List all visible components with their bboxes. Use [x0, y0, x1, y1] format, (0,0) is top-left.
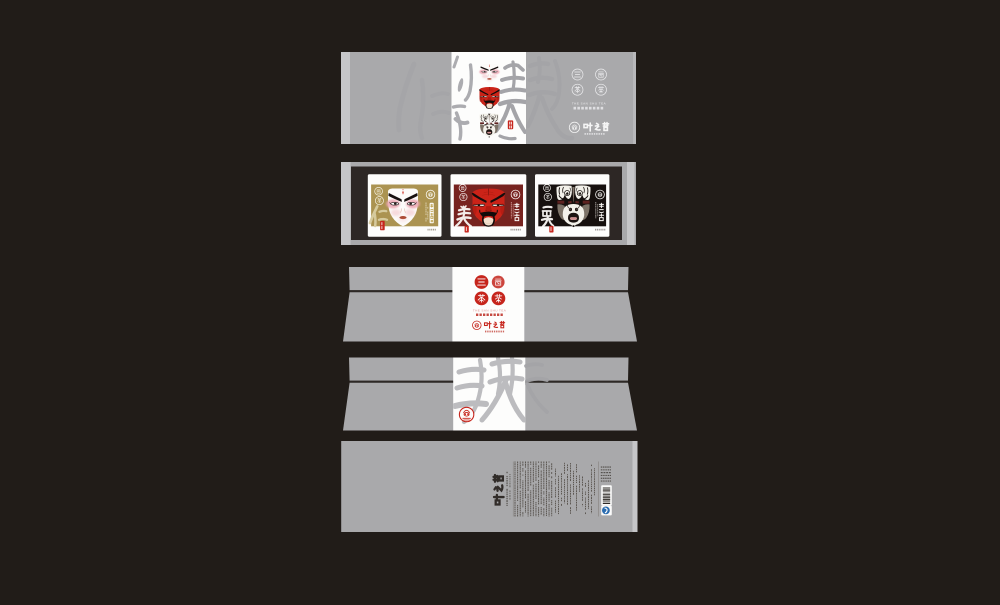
- svg-text:THE SAN SHU TEA: THE SAN SHU TEA: [572, 102, 606, 106]
- svg-text:THE SAN SHU TEA: THE SAN SHU TEA: [473, 308, 507, 312]
